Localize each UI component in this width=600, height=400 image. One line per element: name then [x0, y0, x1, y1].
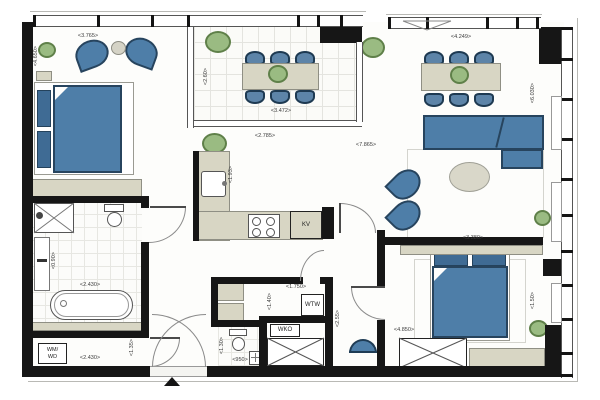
plant-icon: [268, 65, 288, 83]
facade-line-bottom: [28, 381, 578, 382]
sofa-chaise: [501, 149, 543, 169]
window-mullion: [561, 98, 573, 101]
bathtub-drain: [60, 300, 67, 307]
dim-label: <2.55>: [336, 310, 342, 327]
window-mullion: [388, 17, 391, 29]
wall: [325, 277, 333, 370]
dim-label: <0.90>: [52, 252, 58, 269]
wardrobe-x-lines: [399, 338, 467, 368]
window-mullion: [561, 214, 573, 217]
dining-chair: [270, 90, 290, 104]
washer-dryer-box: WM/ WD: [38, 343, 67, 364]
toilet-tank: [104, 204, 124, 212]
bed-pillow: [37, 131, 51, 168]
blanket-fold: [434, 268, 447, 281]
wall: [320, 27, 362, 43]
dim-label: <3.472>: [255, 109, 307, 115]
facade-line-top-left: [30, 11, 366, 12]
nightstand: [36, 71, 52, 81]
dim-label: <1.750>: [270, 285, 322, 291]
wall: [539, 27, 563, 64]
vanity-fixture: [37, 259, 47, 262]
wd-label: WD: [48, 354, 57, 360]
window-mullion: [561, 178, 573, 181]
toilet-tank: [229, 329, 247, 336]
wall: [322, 207, 334, 239]
dim-label: <1.93>: [229, 166, 235, 183]
dim-label: <2.430>: [64, 356, 116, 362]
window-mullion: [340, 15, 343, 27]
plant-icon: [361, 37, 385, 58]
facade-line-top-right: [386, 14, 542, 15]
window-mullion: [561, 374, 573, 377]
wardrobe-cabinet: [469, 348, 545, 367]
window-mullion: [187, 15, 190, 27]
dim-label: <3.765>: [60, 34, 116, 40]
wardrobe-cabinet: [32, 179, 142, 197]
window-mullion: [536, 17, 539, 29]
blanket-fold: [55, 87, 68, 100]
window-mullion: [561, 250, 573, 253]
floor-plan: KV WM/ WD WTW WKO: [0, 0, 600, 400]
side-table: [111, 41, 126, 55]
window-reveal: [551, 182, 562, 242]
toilet-icon: [232, 337, 245, 351]
plant-icon: [38, 42, 56, 58]
wko-label: WKO: [278, 327, 292, 334]
sofa-icon: [423, 115, 544, 150]
dining-chair: [245, 90, 265, 104]
window-mullion: [561, 352, 573, 355]
wall: [259, 320, 267, 366]
window-mullion: [561, 27, 573, 30]
laundry-shelf: [32, 322, 142, 331]
window-mullion: [317, 15, 320, 27]
glass-wall-terrace-bottom: [194, 120, 362, 127]
dining-chair: [295, 90, 315, 104]
window-mullion: [561, 318, 573, 321]
glass-wall-terrace-right: [356, 42, 363, 122]
fridge-kv-box: KV: [290, 211, 322, 239]
dim-label: <2.785>: [238, 134, 292, 140]
window-mullion: [486, 17, 489, 29]
plant-icon: [450, 66, 469, 84]
window-mullion: [516, 17, 519, 29]
hall-closet: [217, 282, 244, 301]
plant-icon: [205, 31, 231, 53]
wall: [22, 366, 151, 377]
dim-label: <2.430>: [64, 283, 116, 289]
wall: [206, 366, 565, 377]
dim-label: <2.60>: [204, 68, 210, 85]
wardrobe-strip: [400, 245, 543, 255]
window-mullion: [97, 15, 100, 27]
wall: [22, 331, 149, 338]
bed-pillow: [37, 90, 51, 127]
dim-label: <1.50>: [531, 292, 537, 309]
dim-label: <1.35>: [130, 339, 136, 356]
dining-chair: [449, 93, 469, 107]
dim-label: <4.249>: [431, 35, 491, 41]
door-leaf: [150, 206, 186, 208]
glass-wall-bedroom1-terrace: [187, 27, 194, 128]
dim-label: <4.650>: [34, 46, 40, 66]
dim-label: <3.380>: [443, 236, 503, 242]
door-leaf: [351, 286, 385, 288]
window-reveal: [551, 96, 562, 150]
window-band-top: [33, 15, 363, 27]
dim-label: <1.40>: [268, 293, 274, 310]
window-mullion: [561, 58, 573, 61]
dim-label: <6.030>: [531, 83, 537, 103]
dining-chair: [424, 93, 444, 107]
wall: [141, 242, 149, 338]
dining-chair: [474, 93, 494, 107]
door-leaf: [339, 203, 341, 233]
dim-label: <7.865>: [336, 143, 396, 149]
wko-unit-box: WKO: [270, 324, 300, 337]
entrance-arrow: [164, 377, 180, 386]
storage-x-lines: [267, 338, 324, 366]
dim-label: <950>: [221, 358, 259, 364]
wall: [211, 277, 303, 284]
window-mullion: [151, 15, 154, 27]
stove-icon: [248, 214, 280, 238]
window-band-right: [561, 27, 573, 378]
wall: [141, 196, 149, 208]
wall: [211, 277, 218, 326]
sink-tap: [222, 181, 227, 186]
wtw-label: WTW: [305, 302, 320, 309]
dim-label: <4.850>: [380, 328, 428, 334]
wall: [543, 259, 563, 276]
window-mullion: [297, 15, 300, 27]
entrance-threshold: [150, 366, 207, 377]
wall: [259, 316, 333, 323]
shower-head: [36, 212, 43, 219]
toilet-icon: [107, 212, 122, 227]
facade-line-right: [577, 18, 578, 381]
tilt-window-symbol: [402, 20, 452, 32]
plant-icon: [534, 210, 551, 226]
wall: [377, 230, 385, 287]
rug-oval: [449, 162, 490, 192]
window-mullion: [33, 15, 36, 27]
window-mullion: [561, 138, 573, 141]
kv-label: KV: [302, 222, 310, 229]
wall: [22, 196, 149, 203]
window-mullion: [561, 284, 573, 287]
window-reveal: [551, 283, 562, 323]
wtw-unit-box: WTW: [301, 294, 324, 316]
wall: [193, 151, 199, 241]
vanity-counter: [34, 237, 50, 291]
dim-label: <1.30>: [220, 337, 226, 354]
